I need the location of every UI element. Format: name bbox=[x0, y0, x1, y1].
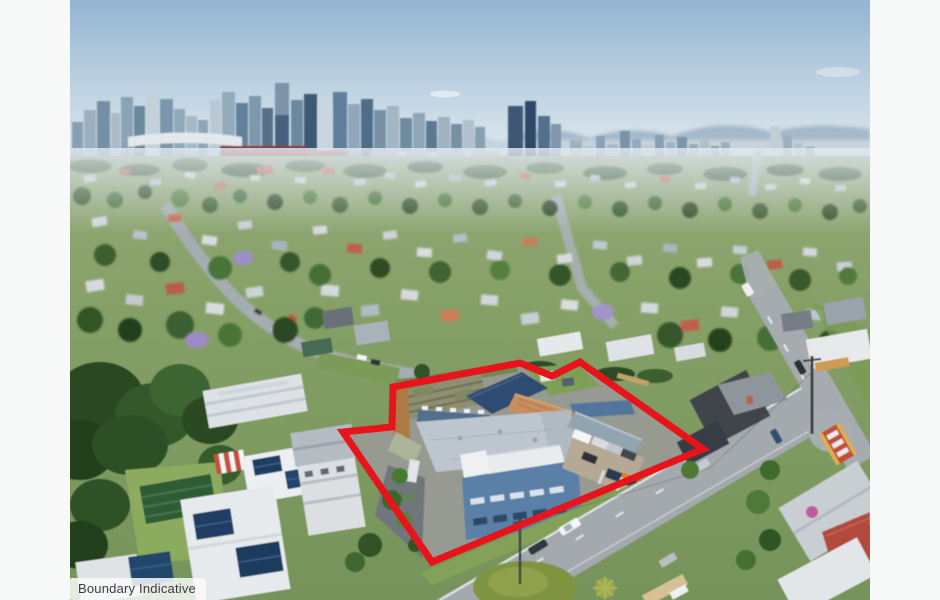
jacaranda-tree bbox=[592, 304, 614, 320]
aerial-photo-canvas bbox=[70, 0, 870, 600]
boundary-indicative-badge: Boundary Indicative bbox=[70, 578, 206, 600]
atmospheric-haze bbox=[70, 148, 870, 233]
aerial-photo: Boundary Indicative bbox=[70, 0, 870, 600]
page-frame: Boundary Indicative bbox=[0, 0, 940, 600]
boundary-indicative-label: Boundary Indicative bbox=[78, 581, 196, 596]
bougainvillea bbox=[806, 506, 818, 518]
jacaranda-tree bbox=[185, 332, 209, 348]
jacaranda-tree bbox=[233, 251, 253, 265]
